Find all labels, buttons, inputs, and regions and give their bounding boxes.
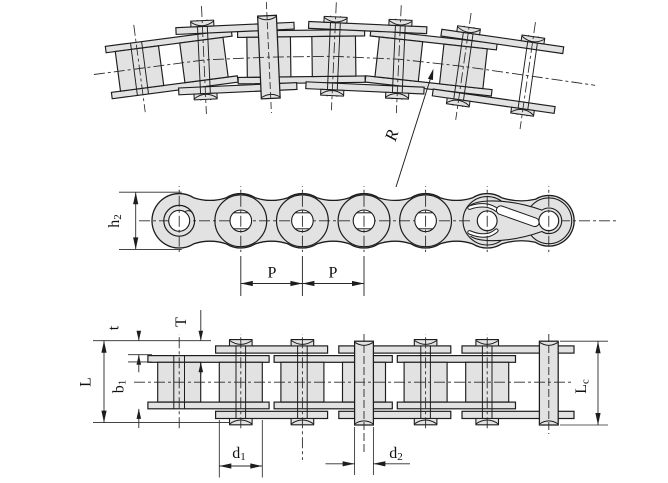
svg-text:P: P [329, 265, 338, 282]
svg-text:t: t [106, 325, 123, 330]
svg-text:P: P [268, 265, 277, 282]
svg-text:T: T [173, 317, 190, 327]
svg-text:L: L [78, 377, 95, 387]
